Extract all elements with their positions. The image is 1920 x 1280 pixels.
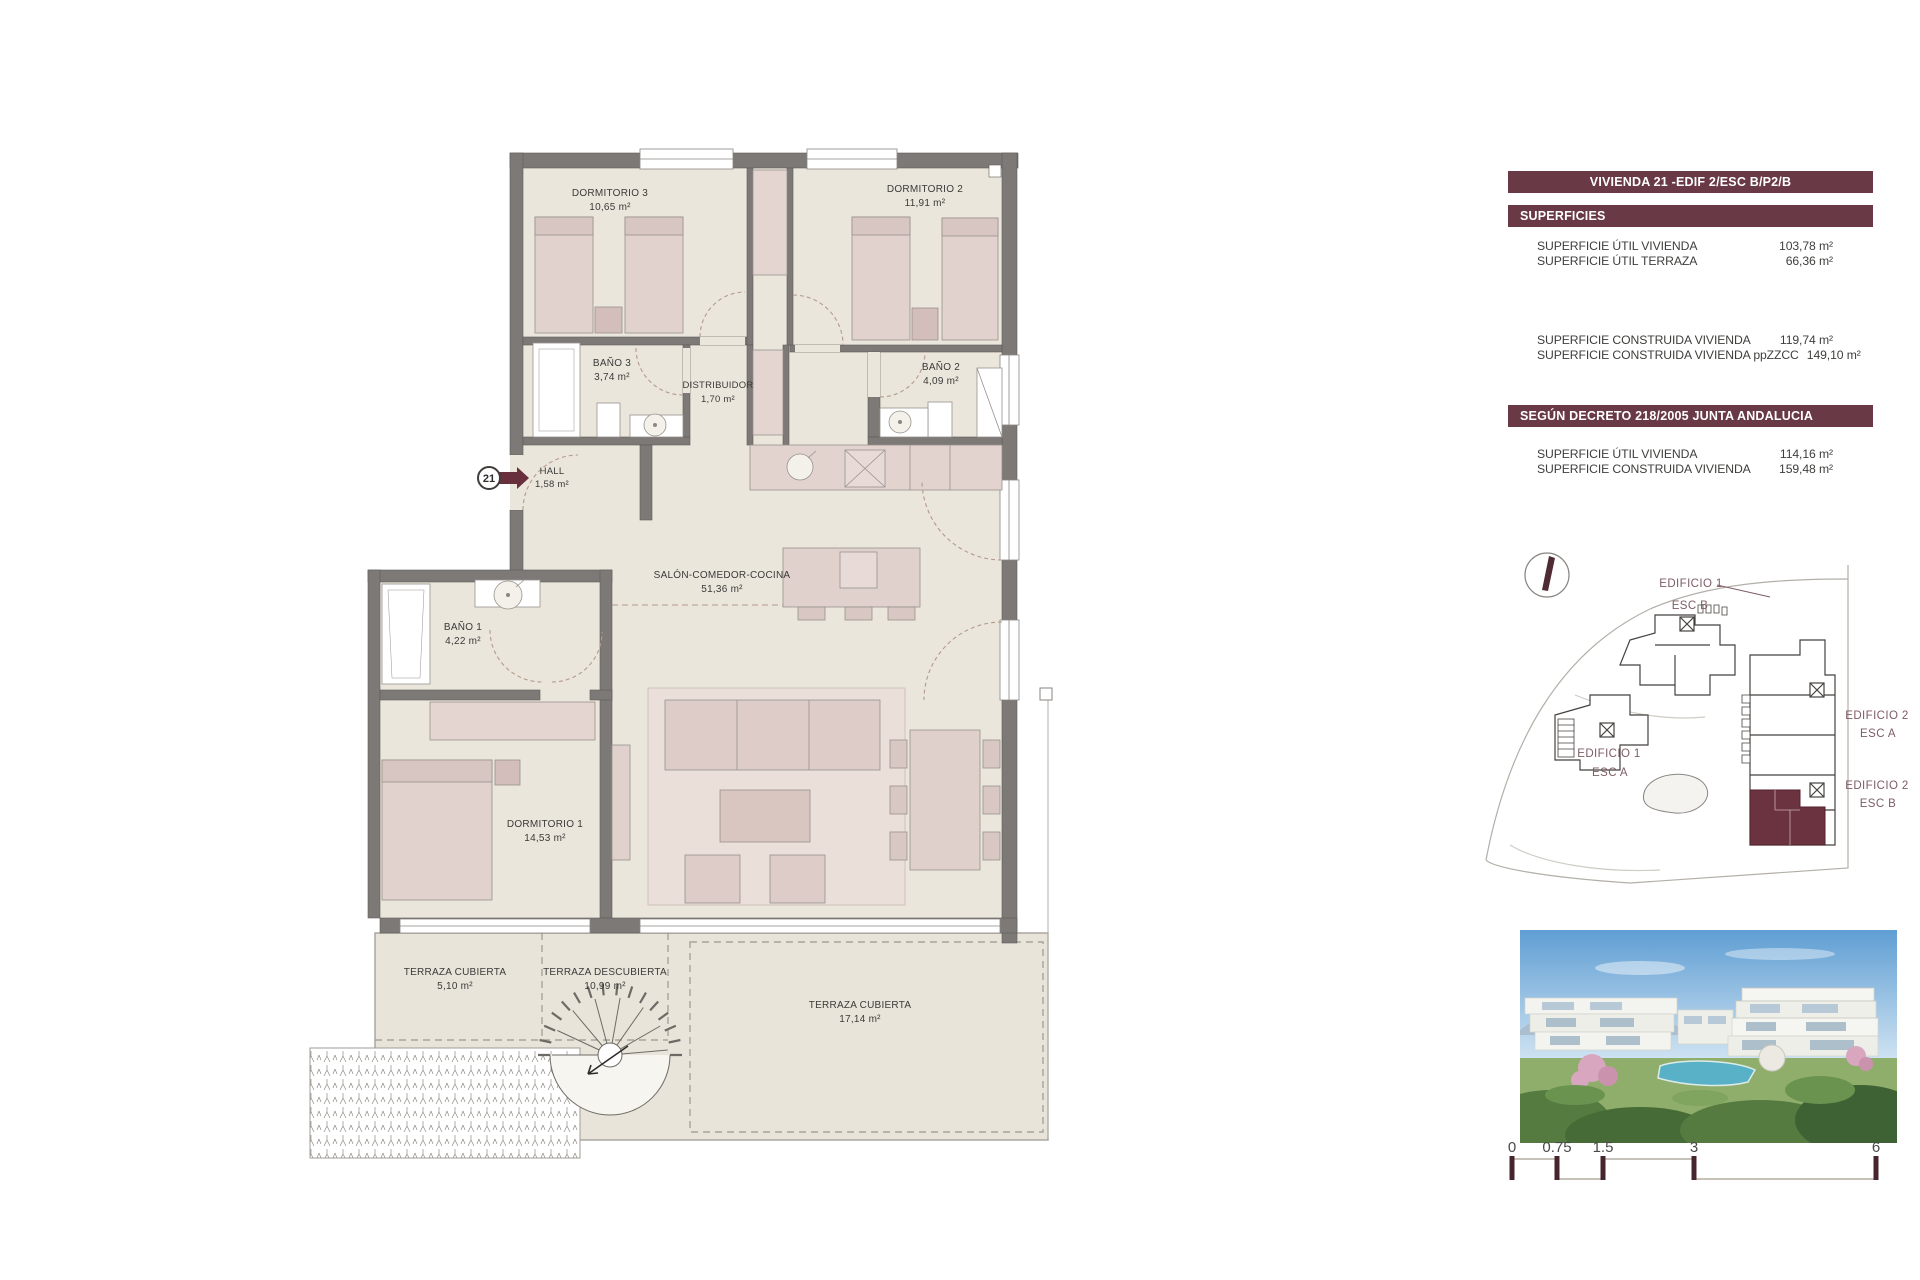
site-label-edif1a-building: EDIFICIO 1 [1577, 748, 1640, 760]
right-building-block [1728, 988, 1878, 1056]
surface-label: SUPERFICIE ÚTIL TERRAZA [1537, 254, 1697, 269]
project-render-photo [1520, 930, 1897, 1143]
site-label-edif2b-stair: ESC B [1860, 798, 1897, 810]
dining-set [890, 730, 1000, 870]
label-salon-area: 51,36 m² [701, 584, 743, 595]
garden-bed [310, 1048, 580, 1158]
superficies-construida-rows: SUPERFICIE CONSTRUIDA VIVIENDA 119,74 m²… [1537, 333, 1833, 362]
scale-tick-label: 6 [1872, 1139, 1880, 1156]
label-hall-area: 1,58 m² [535, 479, 569, 490]
site-labels: EDIFICIO 1 ESC B EDIFICIO 1 ESC A EDIFIC… [1577, 578, 1908, 810]
label-dorm2-name: DORMITORIO 2 [887, 184, 963, 195]
surface-label: SUPERFICIE CONSTRUIDA VIVIENDA ppZZCC [1537, 348, 1799, 363]
label-hall-name: HALL [540, 466, 565, 477]
label-bath2-name: BAÑO 2 [922, 360, 960, 373]
site-label-edif2a-building: EDIFICIO 2 [1845, 710, 1908, 722]
center-building-block [1678, 1010, 1733, 1044]
surface-label: SUPERFICIE ÚTIL VIVIENDA [1537, 447, 1697, 462]
building-edif1-escb [1620, 605, 1735, 695]
site-label-edif1b-building: EDIFICIO 1 [1659, 578, 1722, 590]
surface-row: SUPERFICIE CONSTRUIDA VIVIENDA 119,74 m² [1537, 333, 1833, 348]
superficies-header: SUPERFICIES [1520, 209, 1606, 223]
surface-value: 103,78 m² [1771, 239, 1833, 254]
surface-value: 66,36 m² [1778, 254, 1833, 269]
surface-row: SUPERFICIE ÚTIL TERRAZA 66,36 m² [1537, 254, 1833, 269]
site-plan: EDIFICIO 1 ESC B EDIFICIO 1 ESC A EDIFIC… [1480, 545, 1920, 905]
label-terraza-desc-area: 10,99 m² [584, 981, 626, 992]
scale-tick-label: 0.75 [1542, 1139, 1571, 1156]
scale-ticks [1510, 1156, 1879, 1180]
plan-sheet: 21 DORMITORIO 3 10,65 m² DORMITORIO 2 11… [0, 0, 1920, 1280]
scale-tick-label: 1.5 [1593, 1139, 1614, 1156]
decreto-rows: SUPERFICIE ÚTIL VIVIENDA 114,16 m² SUPER… [1537, 447, 1833, 476]
left-building-block [1525, 998, 1677, 1050]
pavilion [1759, 1045, 1785, 1071]
edificio1-leader-line [1717, 585, 1770, 597]
living-area [612, 688, 905, 905]
surface-value: 149,10 m² [1799, 348, 1861, 363]
surface-label: SUPERFICIE ÚTIL VIVIENDA [1537, 239, 1697, 254]
label-dorm2-area: 11,91 m² [905, 198, 946, 209]
label-salon-name: SALÓN-COMEDOR-COCINA [654, 568, 791, 581]
surface-row: SUPERFICIE ÚTIL VIVIENDA 114,16 m² [1537, 447, 1833, 462]
unit-number: 21 [483, 473, 495, 485]
label-dorm1-area: 14,53 m² [524, 833, 566, 844]
decreto-header: SEGÚN DECRETO 218/2005 JUNTA ANDALUCIA [1520, 409, 1813, 423]
north-compass-icon [1525, 553, 1569, 597]
unit-title-bar: VIVIENDA 21 -EDIF 2/ESC B/P2/B [1508, 171, 1873, 193]
surface-value: 119,74 m² [1772, 333, 1833, 348]
scale-tick-label: 0 [1508, 1139, 1516, 1156]
hall-closet [753, 350, 783, 435]
label-bath2-area: 4,09 m² [923, 376, 959, 387]
site-label-edif1b-stair: ESC B [1672, 600, 1709, 612]
surface-label: SUPERFICIE CONSTRUIDA VIVIENDA [1537, 462, 1751, 477]
label-terraza-cub2-area: 17,14 m² [839, 1014, 881, 1025]
superficies-util-rows: SUPERFICIE ÚTIL VIVIENDA 103,78 m² SUPER… [1537, 239, 1833, 268]
surface-value: 114,16 m² [1772, 447, 1833, 462]
surface-row: SUPERFICIE CONSTRUIDA VIVIENDA ppZZCC 14… [1537, 348, 1833, 363]
site-label-edif2a-stair: ESC A [1860, 728, 1896, 740]
label-terraza-cub1-area: 5,10 m² [437, 981, 473, 992]
label-bath3-name: BAÑO 3 [593, 356, 631, 369]
label-bath3-area: 3,74 m² [594, 372, 630, 383]
label-distribuidor-name: DISTRIBUIDOR [682, 380, 753, 391]
surface-row: SUPERFICIE ÚTIL VIVIENDA 103,78 m² [1537, 239, 1833, 254]
pool-outline [1643, 774, 1707, 813]
label-terraza-desc-name: TERRAZA DESCUBIERTA [543, 967, 667, 978]
pool [1658, 1061, 1755, 1085]
surface-label: SUPERFICIE CONSTRUIDA VIVIENDA [1537, 333, 1751, 348]
decreto-bar: SEGÚN DECRETO 218/2005 JUNTA ANDALUCIA [1508, 405, 1873, 427]
label-dorm1-name: DORMITORIO 1 [507, 819, 583, 830]
label-bath1-name: BAÑO 1 [444, 620, 482, 633]
site-label-edif2b-building: EDIFICIO 2 [1845, 780, 1908, 792]
scale-numbers: 0 0.75 1.5 3 6 [1508, 1139, 1880, 1156]
label-terraza-cub1-name: TERRAZA CUBIERTA [404, 967, 507, 978]
surface-value: 159,48 m² [1771, 462, 1833, 477]
superficies-bar: SUPERFICIES [1508, 205, 1873, 227]
label-dorm3-area: 10,65 m² [589, 202, 631, 213]
wardrobe-closet [753, 170, 787, 275]
scale-tick-label: 3 [1690, 1139, 1698, 1156]
scale-bar: 0 0.75 1.5 3 6 [1500, 1138, 1900, 1193]
surface-row: SUPERFICIE CONSTRUIDA VIVIENDA 159,48 m² [1537, 462, 1833, 477]
floor-plan: 21 DORMITORIO 3 10,65 m² DORMITORIO 2 11… [290, 140, 1070, 1200]
label-dorm3-name: DORMITORIO 3 [572, 188, 648, 199]
site-label-edif1a-stair: ESC A [1592, 767, 1628, 779]
kitchen-island [783, 548, 920, 620]
label-distribuidor-area: 1,70 m² [701, 394, 735, 405]
label-bath1-area: 4,22 m² [445, 636, 481, 647]
kitchen-counter [750, 445, 1002, 490]
label-terraza-cub2-name: TERRAZA CUBIERTA [809, 1000, 912, 1011]
unit-title: VIVIENDA 21 -EDIF 2/ESC B/P2/B [1590, 175, 1791, 189]
